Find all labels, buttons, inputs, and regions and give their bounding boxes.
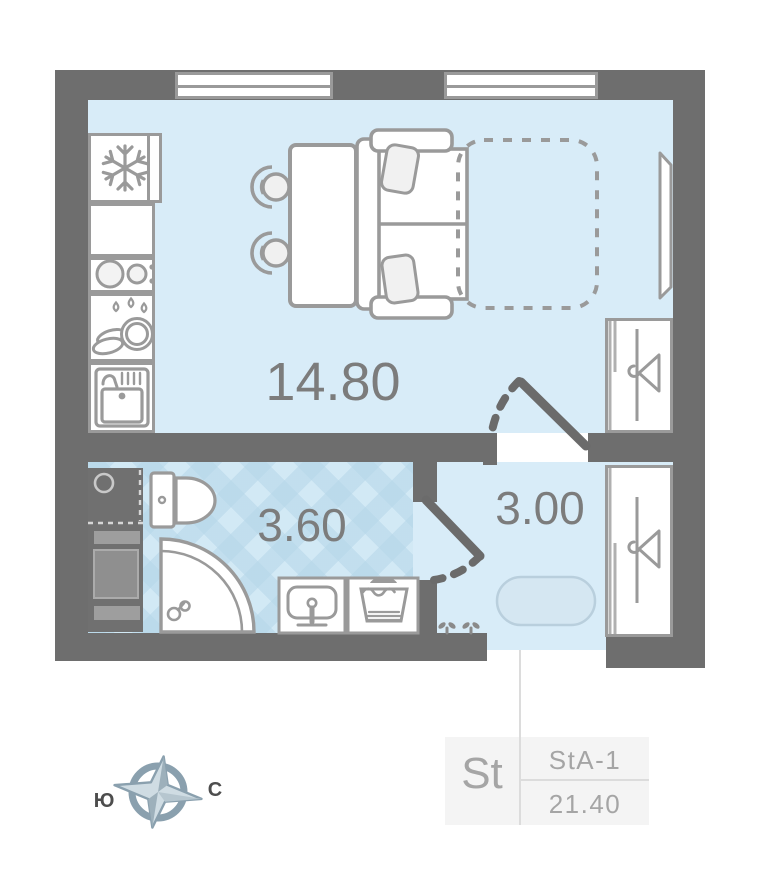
- wall-divider-right: [588, 433, 673, 462]
- wall-bathroom-east-lower: [413, 580, 437, 633]
- entrance-opening-floor: [487, 637, 606, 650]
- compass-north-label: С: [208, 779, 222, 801]
- dining-table: [288, 143, 358, 308]
- wall-right: [673, 70, 705, 668]
- apartment-total-area: 21.40: [521, 791, 649, 817]
- area-label-hallway: 3.00: [465, 485, 615, 531]
- kitchen-sink-cabinet: [88, 362, 155, 433]
- stove: [88, 257, 155, 293]
- area-label-bathroom: 3.60: [227, 502, 377, 548]
- apartment-type-label: St: [445, 752, 519, 796]
- compass: Ю С: [94, 750, 223, 835]
- wall-bathroom-east-upper: [413, 462, 437, 502]
- wall-divider-jamb: [483, 433, 497, 465]
- window-mullion: [446, 85, 596, 88]
- fridge-door-line: [147, 136, 150, 200]
- compass-rose-icon: [109, 750, 207, 835]
- utility-shaft: [88, 468, 143, 632]
- window-right: [444, 72, 598, 99]
- wardrobe-living: [605, 318, 673, 433]
- wall-divider-left: [88, 433, 490, 462]
- card-divider-line: [521, 779, 649, 781]
- window-left: [175, 72, 333, 99]
- window-mullion: [177, 85, 331, 88]
- wardrobe-hallway: [605, 465, 673, 637]
- area-label-living: 14.80: [243, 355, 423, 409]
- kitchen-counter: [88, 203, 155, 257]
- wall-left: [55, 70, 88, 661]
- compass-ring: [132, 766, 184, 818]
- apartment-layout-code: StA-1: [521, 747, 649, 773]
- fridge: [88, 133, 162, 203]
- dish-dryer: [88, 293, 155, 362]
- wall-bottom-right: [606, 637, 705, 668]
- compass-south-label: Ю: [94, 790, 115, 812]
- floorplan-canvas: Ю С 14.80 3.60 3.00 St StA-1 21.40: [0, 0, 760, 890]
- wall-bottom-left: [55, 633, 487, 661]
- wall-top: [55, 70, 705, 100]
